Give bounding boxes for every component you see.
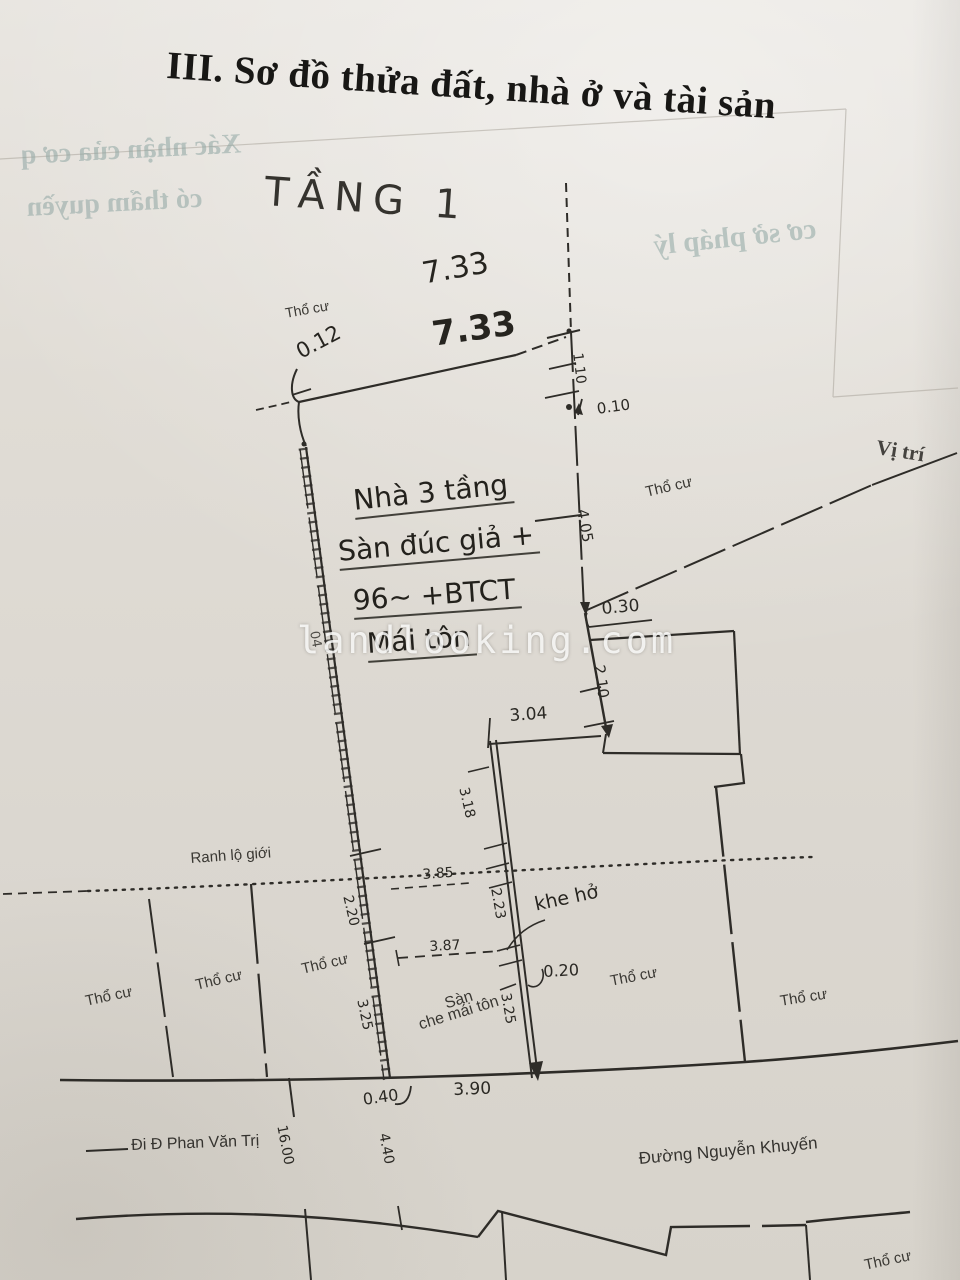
dim-210: 2.10 — [591, 664, 611, 699]
dim-020: 0.20 — [543, 962, 579, 980]
dim-304: 3.04 — [509, 705, 548, 725]
dim-387: 3.87 — [429, 938, 461, 954]
scanned-land-plot-page: Xác nhận của cơ q có thẩm quyền cơ sở ph… — [0, 0, 960, 1280]
watermark: landlooking.com — [297, 622, 676, 659]
dim-010: 0.10 — [596, 397, 631, 417]
dim-405: 4.05 — [574, 508, 595, 544]
dim-390: 3.90 — [453, 1081, 491, 1099]
dim-110: 1.10 — [570, 352, 588, 385]
vi-tri-leader-line — [587, 453, 957, 610]
center-boundary-line — [535, 183, 590, 616]
dim-385: 3.85 — [422, 866, 454, 882]
street-edge-bottom — [76, 1206, 910, 1280]
dim-top-edge-b: 7.33 — [430, 306, 518, 351]
dim-030: 0.30 — [601, 598, 640, 618]
right-outline — [590, 631, 745, 1062]
